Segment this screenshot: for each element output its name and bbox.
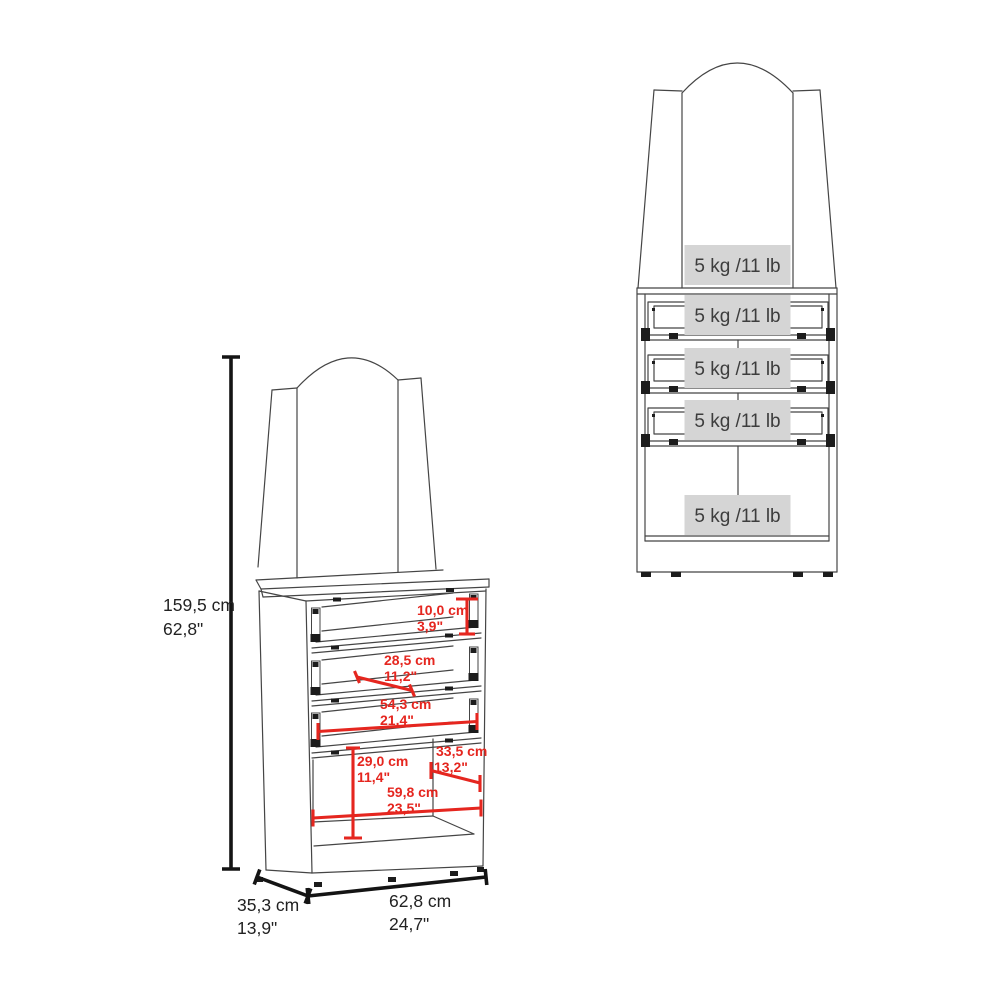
drawer-width-in: 21,4" <box>380 712 414 728</box>
cubby-width-in: 23,5" <box>387 800 421 816</box>
cubby-height-in: 11,4" <box>357 769 390 785</box>
capacity-label-drawer-2: 5 kg /11 lb <box>685 348 791 388</box>
cubby-height-cm: 29,0 cm <box>357 753 408 769</box>
diagram-canvas: 159,5 cm 62,8" 35,3 cm 13,9" 62,8 cm 24,… <box>0 0 1000 1000</box>
depth-cm-label: 35,3 cm <box>237 895 299 915</box>
drawer-depth-cm: 28,5 cm <box>384 652 435 668</box>
width-in-label: 24,7" <box>389 914 429 934</box>
width-cm-label: 62,8 cm <box>389 891 451 911</box>
capacity-label-drawer-1: 5 kg /11 lb <box>685 295 791 335</box>
capacity-label-drawer-3: 5 kg /11 lb <box>685 400 791 440</box>
drawer-height-in: 3,9" <box>417 618 443 634</box>
mirror-hutch <box>258 358 436 578</box>
capacity-text-lower-cabinet: 5 kg /11 lb <box>694 506 780 527</box>
capacity-text-mirror: 5 kg /11 lb <box>694 256 780 277</box>
capacity-text-drawer-3: 5 kg /11 lb <box>694 411 780 432</box>
left-figure-line-art <box>255 358 489 887</box>
capacity-text-drawer-2: 5 kg /11 lb <box>694 359 780 380</box>
drawer-depth-in: 11,2" <box>384 668 417 684</box>
furniture-diagram: 159,5 cm 62,8" 35,3 cm 13,9" 62,8 cm 24,… <box>0 0 1000 1000</box>
height-in-label: 62,8" <box>163 619 203 639</box>
capacity-label-lower-cabinet: 5 kg /11 lb <box>685 495 791 535</box>
cubby-depth-cm: 33,5 cm <box>436 743 487 759</box>
drawer-height-cm: 10,0 cm <box>417 602 468 618</box>
height-cm-label: 159,5 cm <box>163 595 235 615</box>
cubby-depth-in: 13,2" <box>434 759 468 775</box>
capacity-text-drawer-1: 5 kg /11 lb <box>694 306 780 327</box>
depth-in-label: 13,9" <box>237 918 277 938</box>
cubby-width-cm: 59,8 cm <box>387 784 438 800</box>
capacity-label-mirror: 5 kg /11 lb <box>685 245 791 285</box>
drawer-width-cm: 54,3 cm <box>380 696 431 712</box>
